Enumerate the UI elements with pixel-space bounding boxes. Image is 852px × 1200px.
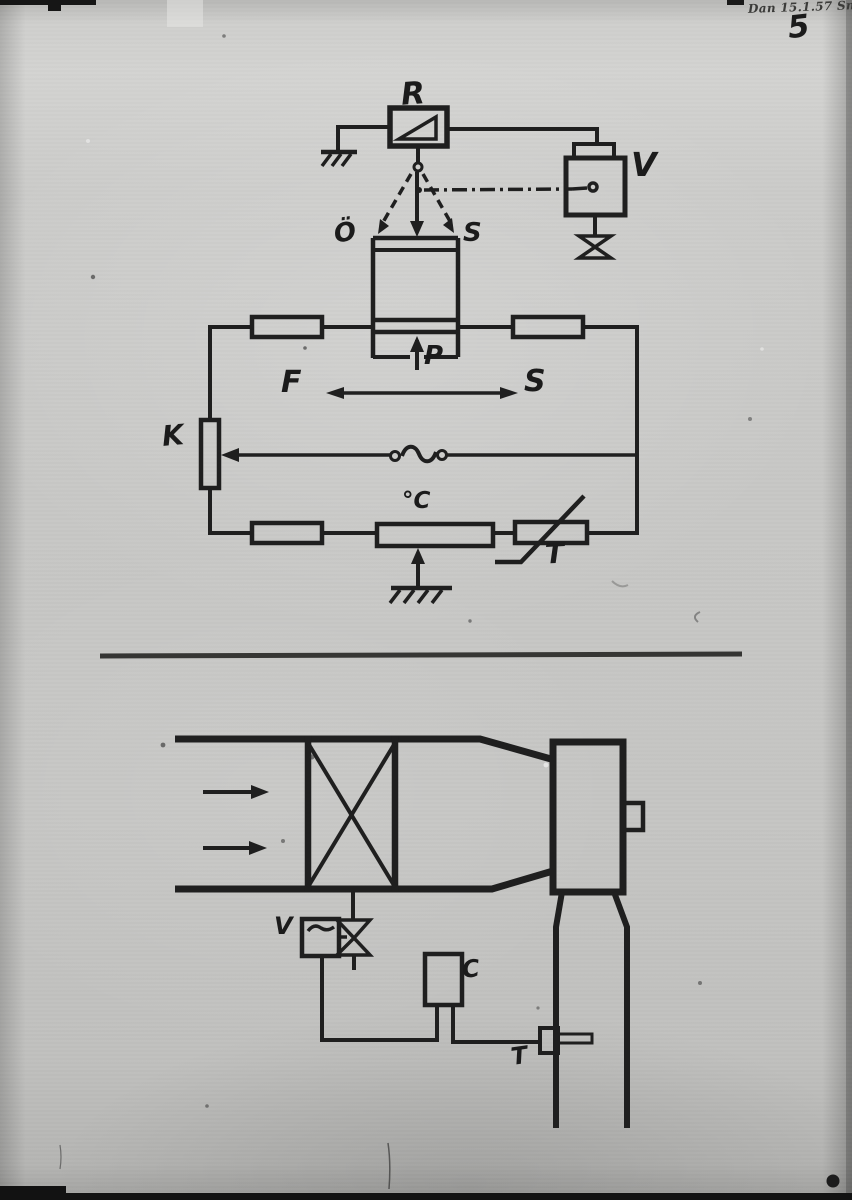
ground-icon-left <box>321 127 390 166</box>
pressure-arrow <box>410 336 424 370</box>
wiper-line-ac-source <box>221 447 637 462</box>
valve-positioner <box>302 919 339 956</box>
flow-arrows <box>203 785 269 855</box>
thermistor-stroke <box>495 496 584 562</box>
label-sensor: T <box>509 1043 529 1069</box>
temperature-sensor <box>540 1028 592 1053</box>
label-controller: C <box>461 956 481 982</box>
span-double-arrow <box>326 387 518 399</box>
label-pressure: P <box>424 343 443 369</box>
label-compensator: K <box>161 421 185 451</box>
label-open: Ö <box>332 219 358 248</box>
label-setpoint: °C <box>402 490 430 513</box>
valve-command-line <box>424 188 587 190</box>
diagram-linework <box>0 0 852 1200</box>
label-regulator: R <box>400 78 426 111</box>
fan-unit <box>553 742 643 892</box>
valve-actuator <box>566 144 625 258</box>
label-forward: F <box>281 368 302 398</box>
section-divider <box>100 654 742 656</box>
controller-box <box>425 954 462 1005</box>
label-supply: S <box>524 367 546 397</box>
setpoint-ground <box>390 548 452 603</box>
label-valve: V <box>274 914 293 938</box>
label-valve-actuator: V <box>631 148 657 181</box>
control-valve <box>337 892 370 970</box>
scanned-diagram-photo: Dan 15.1.57 Sm 5 R V Ö S P F S K °C T V … <box>0 0 852 1200</box>
heater-coil <box>308 736 395 891</box>
page-number: 5 <box>786 11 811 44</box>
discharge-pipe <box>556 892 627 1128</box>
label-closed: S <box>463 220 482 246</box>
pivot-linkage <box>378 146 454 237</box>
label-thermistor: T <box>544 540 565 569</box>
air-duct <box>175 739 553 889</box>
regulator-block <box>390 108 447 146</box>
